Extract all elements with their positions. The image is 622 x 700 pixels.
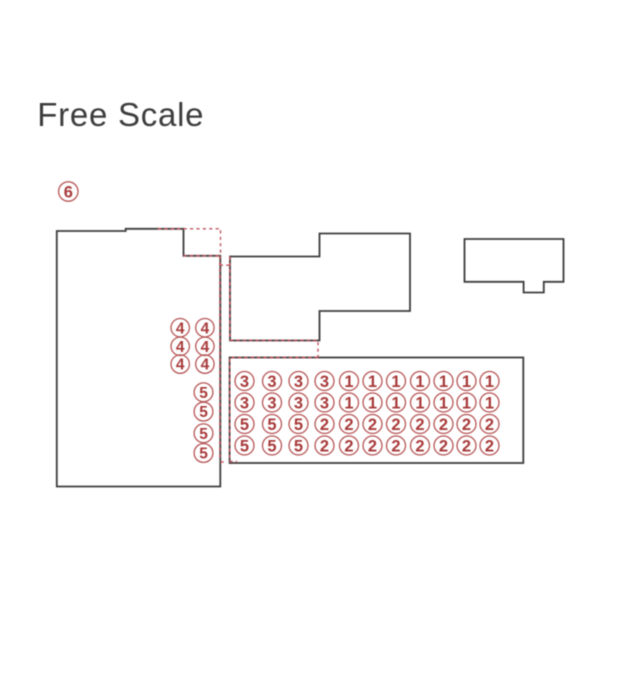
- svg-text:2: 2: [320, 437, 329, 455]
- svg-text:1: 1: [368, 394, 377, 412]
- svg-text:4: 4: [201, 357, 210, 374]
- svg-text:2: 2: [344, 437, 353, 455]
- svg-text:2: 2: [368, 416, 377, 434]
- svg-text:5: 5: [267, 416, 276, 434]
- svg-text:3: 3: [240, 394, 249, 412]
- svg-text:1: 1: [485, 394, 494, 412]
- svg-text:5: 5: [199, 404, 208, 421]
- svg-text:5: 5: [199, 446, 208, 463]
- svg-text:2: 2: [485, 416, 494, 434]
- svg-text:1: 1: [391, 373, 400, 391]
- svg-text:2: 2: [439, 437, 448, 455]
- svg-text:1: 1: [462, 394, 471, 412]
- svg-text:5: 5: [199, 426, 208, 443]
- svg-text:1: 1: [462, 373, 471, 391]
- svg-text:3: 3: [267, 394, 276, 412]
- svg-text:3: 3: [267, 373, 276, 391]
- svg-text:5: 5: [294, 437, 303, 455]
- svg-text:1: 1: [368, 373, 377, 391]
- svg-text:1: 1: [415, 394, 424, 412]
- svg-text:5: 5: [294, 416, 303, 434]
- svg-text:2: 2: [462, 416, 471, 434]
- svg-text:2: 2: [320, 416, 329, 434]
- svg-text:5: 5: [240, 416, 249, 434]
- svg-text:2: 2: [439, 416, 448, 434]
- svg-text:1: 1: [415, 373, 424, 391]
- svg-text:3: 3: [240, 373, 249, 391]
- svg-text:6: 6: [64, 183, 73, 201]
- svg-text:2: 2: [391, 416, 400, 434]
- svg-text:1: 1: [439, 394, 448, 412]
- svg-text:4: 4: [176, 339, 185, 356]
- svg-text:3: 3: [294, 373, 303, 391]
- svg-text:2: 2: [462, 437, 471, 455]
- svg-text:5: 5: [267, 437, 276, 455]
- svg-text:2: 2: [415, 416, 424, 434]
- svg-text:2: 2: [485, 437, 494, 455]
- svg-text:3: 3: [294, 394, 303, 412]
- svg-text:4: 4: [201, 339, 210, 356]
- svg-text:2: 2: [368, 437, 377, 455]
- svg-text:5: 5: [199, 385, 208, 402]
- svg-text:Free Scale: Free Scale: [37, 96, 204, 133]
- svg-text:1: 1: [344, 394, 353, 412]
- svg-text:2: 2: [415, 437, 424, 455]
- svg-text:5: 5: [240, 437, 249, 455]
- svg-text:1: 1: [485, 373, 494, 391]
- svg-text:1: 1: [439, 373, 448, 391]
- svg-text:3: 3: [320, 394, 329, 412]
- svg-text:4: 4: [176, 357, 185, 374]
- svg-text:2: 2: [344, 416, 353, 434]
- svg-text:1: 1: [344, 373, 353, 391]
- svg-text:2: 2: [391, 437, 400, 455]
- svg-text:1: 1: [391, 394, 400, 412]
- svg-text:4: 4: [176, 320, 185, 337]
- svg-text:4: 4: [201, 320, 210, 337]
- svg-text:3: 3: [320, 373, 329, 391]
